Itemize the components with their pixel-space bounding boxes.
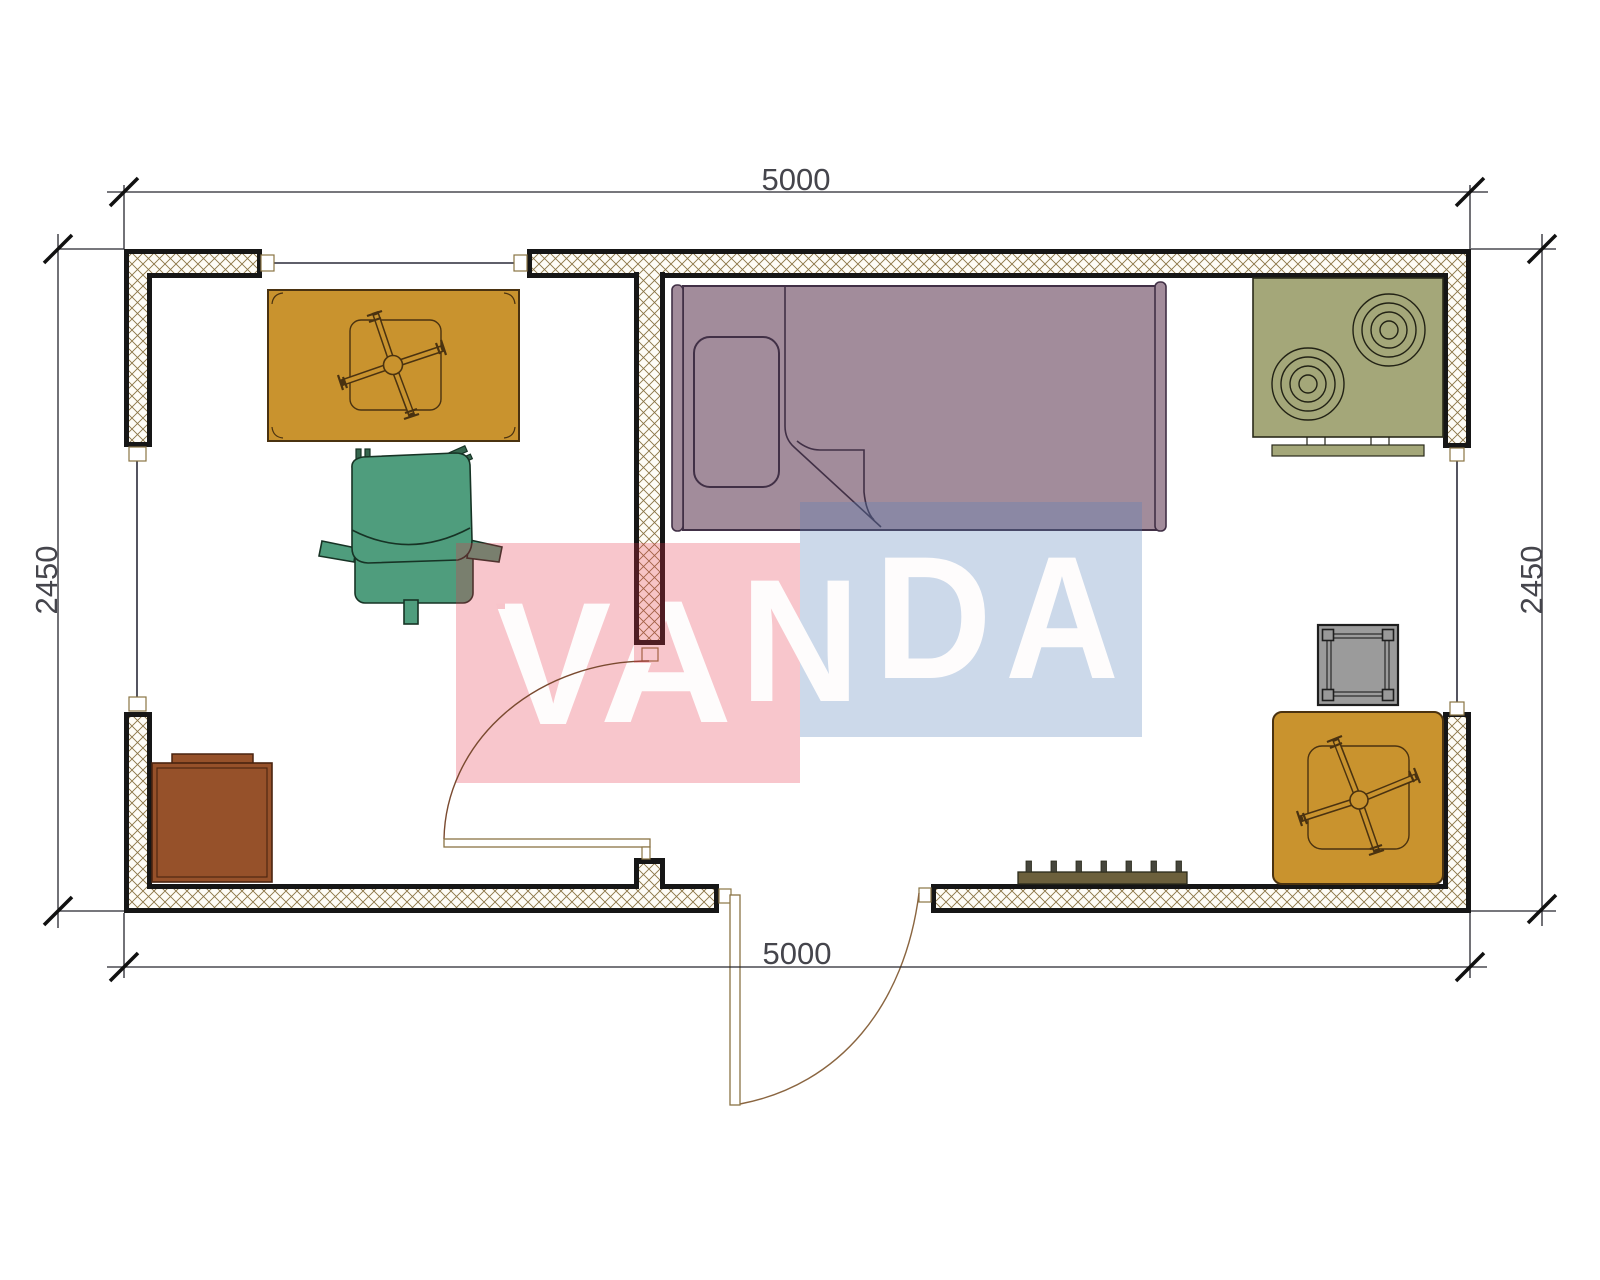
svg-text:N: N bbox=[740, 543, 860, 739]
svg-text:2450: 2450 bbox=[29, 546, 64, 615]
svg-text:5000: 5000 bbox=[763, 936, 832, 971]
svg-text:A: A bbox=[1005, 520, 1119, 716]
svg-text:2450: 2450 bbox=[1514, 546, 1549, 615]
svg-text:D: D bbox=[874, 520, 992, 716]
svg-text:5000: 5000 bbox=[762, 162, 831, 197]
svg-text:V: V bbox=[495, 567, 612, 762]
